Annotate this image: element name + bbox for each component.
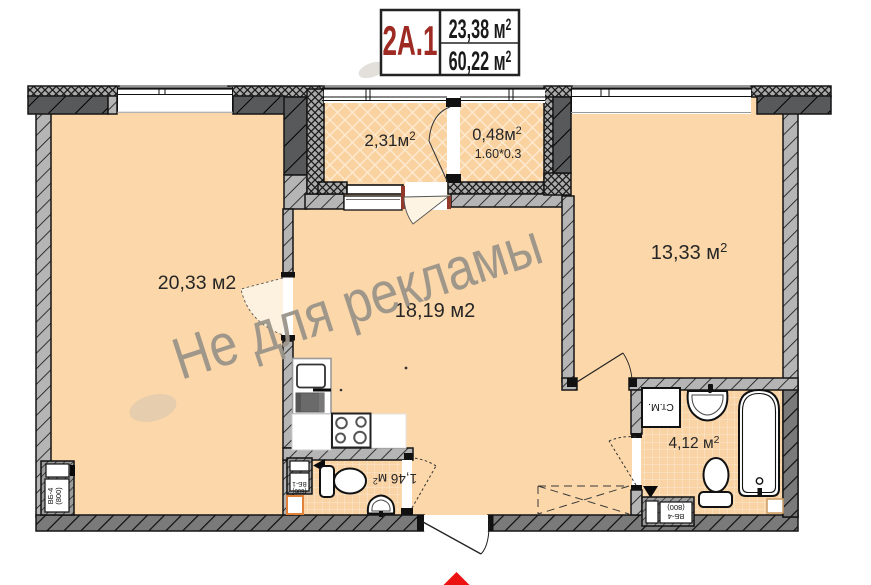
svg-text:20,33 м2: 20,33 м2 (158, 272, 236, 294)
svg-text:2А.1: 2А.1 (382, 18, 437, 65)
svg-text:13,33 м2: 13,33 м2 (651, 240, 728, 264)
svg-text:(600): (600) (292, 487, 306, 493)
svg-text:1,46 м2: 1,46 м2 (373, 471, 417, 486)
svg-text:60,22 м2: 60,22 м2 (449, 46, 512, 76)
svg-text:(800): (800) (667, 503, 685, 512)
svg-text:(800): (800) (54, 487, 63, 505)
svg-text:4,12 м2: 4,12 м2 (669, 434, 720, 452)
svg-text:ВБ-1: ВБ-1 (292, 480, 307, 487)
svg-text:23,38 м2: 23,38 м2 (449, 14, 512, 44)
svg-text:1.60*0.3: 1.60*0.3 (475, 147, 522, 161)
svg-text:ВБ-4: ВБ-4 (668, 512, 685, 521)
svg-text:0,48м2: 0,48м2 (472, 125, 522, 144)
svg-text:2,31м2: 2,31м2 (364, 131, 415, 150)
svg-text:Ст.М.: Ст.М. (648, 401, 674, 413)
